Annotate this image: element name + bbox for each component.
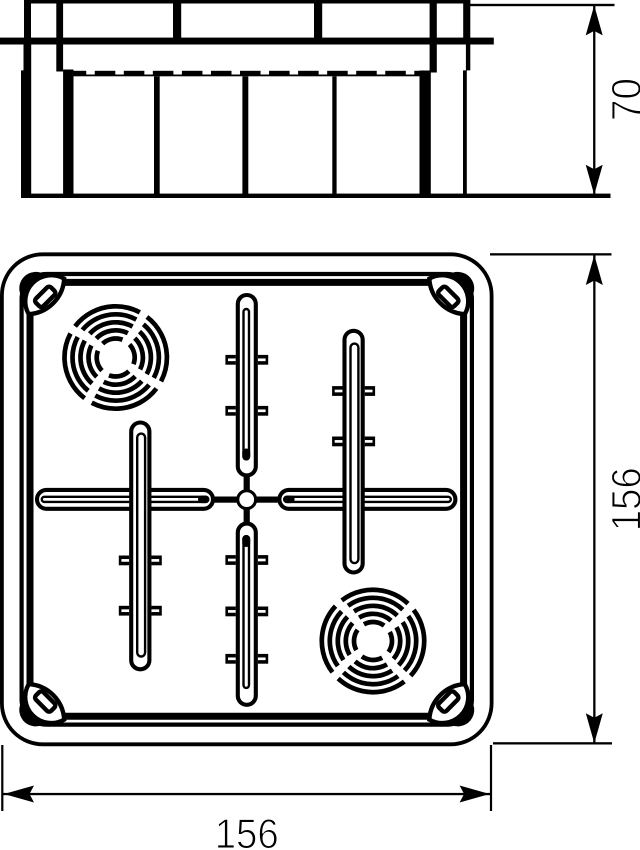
svg-text:156: 156 [215,810,279,850]
svg-text:70: 70 [603,78,640,121]
svg-text:156: 156 [603,467,640,531]
